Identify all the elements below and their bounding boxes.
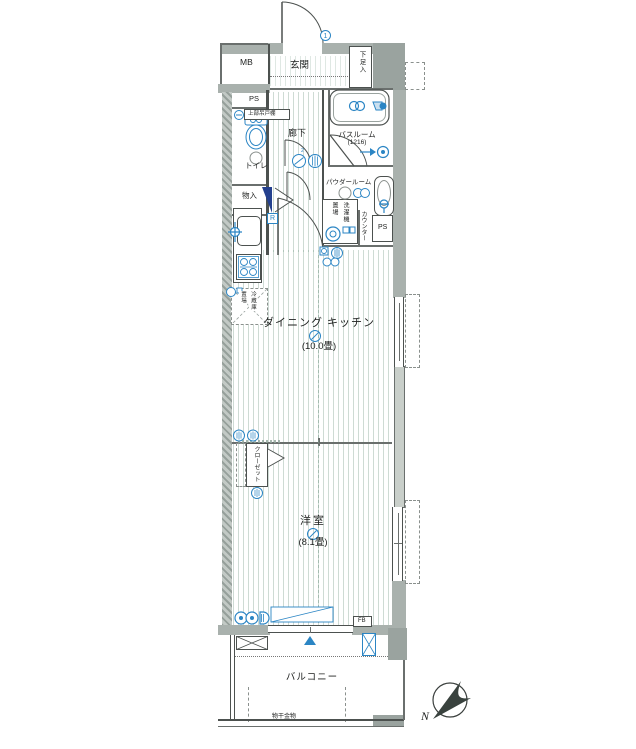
powder-note-markers (318, 245, 354, 267)
kitchen-faucet-icon (226, 220, 244, 244)
washer-label-line1: 洗濯機 (341, 202, 350, 223)
dining-kitchen-size: (10.0畳) (269, 342, 369, 353)
fridge-label-line1: 冷蔵庫 (249, 291, 257, 311)
balcony-bottom-line2 (218, 726, 404, 727)
bedroom-label: 洋室 (273, 515, 353, 528)
balcony-hatch-box-right (362, 633, 376, 656)
toilet-icon (242, 114, 270, 166)
fridge-label-line2: 置場 (239, 291, 247, 311)
storage-label: 物入 (242, 192, 257, 201)
right-wall-mid (394, 366, 405, 508)
laundry-hardware-label: 物干金物 (272, 714, 296, 721)
hallway-label: 廊下 (288, 128, 306, 138)
corner-block-bottom-right (388, 628, 407, 660)
right-window-1 (394, 297, 404, 367)
partition-note-markers (232, 429, 260, 442)
window-sill-wedge (270, 606, 334, 623)
right-wall-lower (392, 580, 406, 628)
fridge-space-label: 冷蔵庫 置場 (239, 291, 257, 311)
balcony-bottom-line (218, 719, 404, 721)
laundry-pole-left (248, 687, 249, 722)
genkan-label: 玄関 (290, 61, 309, 72)
bottomleft-fixture-icons (234, 609, 268, 626)
shoe-box-label: 下足入 (356, 51, 366, 74)
left-wall (222, 92, 232, 633)
ps-top-label: PS (249, 95, 259, 104)
balcony-right-line (403, 660, 405, 720)
laundry-pole-right (345, 687, 346, 722)
closet-dashed-strip (236, 443, 246, 487)
counter-label: カウンター (359, 211, 368, 241)
right-dashed-box-1 (405, 62, 425, 90)
bottom-window (268, 625, 353, 633)
fb-label: FB (358, 618, 366, 625)
balcony-access-triangle (304, 636, 316, 645)
powder-circles-icon (337, 184, 371, 202)
top-wall-left (222, 43, 283, 54)
powder-room-label: パウダールーム (326, 179, 371, 186)
washer-icon (324, 224, 356, 243)
bathroom-size-label: (1216) (334, 139, 380, 146)
bathtub-icon (329, 89, 391, 127)
ps-mid-label: PS (378, 224, 387, 232)
hallway-fixture-symbols (291, 152, 325, 170)
mb-right-wall (268, 44, 270, 84)
genkan-step-dotted (270, 76, 348, 77)
washbasin-faucet-icon (376, 196, 392, 214)
right-wall-upper (393, 90, 406, 298)
balcony-left-wall (230, 635, 235, 720)
right-dashed-box-3 (405, 500, 420, 584)
right-dashed-box-2 (405, 294, 420, 368)
toilet-label: トイレ (245, 162, 268, 171)
corner-block-top-right (373, 43, 405, 90)
closet-label: クローゼット (252, 446, 261, 482)
mb-left-line (220, 43, 222, 84)
floor-plan: 1 下足入 MB 玄関 PS 上部吊戸棚 トイレ 物入 廊下 2 (0, 0, 636, 749)
right-window-2 (392, 507, 403, 581)
mb-top-line (220, 43, 268, 45)
compass-north-label: N (421, 710, 429, 724)
hall-note-sup: 2 (301, 148, 304, 154)
washer-label-line2: 置場 (330, 202, 339, 223)
bottom-wall-left (218, 625, 270, 635)
bedroom-size: (8.1畳) (273, 538, 353, 549)
kitchen-stove-burners (238, 256, 259, 278)
balcony-label: バルコニー (262, 673, 362, 684)
closet-door-fold (267, 447, 287, 469)
mb-label: MB (240, 58, 253, 68)
closet-note-marker (250, 486, 264, 500)
dining-kitchen-label: ダイニング キッチン (253, 317, 385, 330)
balcony-inner-dotted (235, 656, 388, 657)
compass-icon (426, 677, 474, 727)
washer-space-label: 洗濯機 置場 (330, 202, 350, 223)
balcony-hatch-box-left (236, 636, 268, 650)
upper-cabinet-label: 上部吊戸棚 (248, 111, 276, 117)
center-guide-dashed (318, 255, 319, 623)
entry-door-note: 1 (320, 30, 331, 41)
refrigerator-mark-label: R (270, 215, 275, 223)
